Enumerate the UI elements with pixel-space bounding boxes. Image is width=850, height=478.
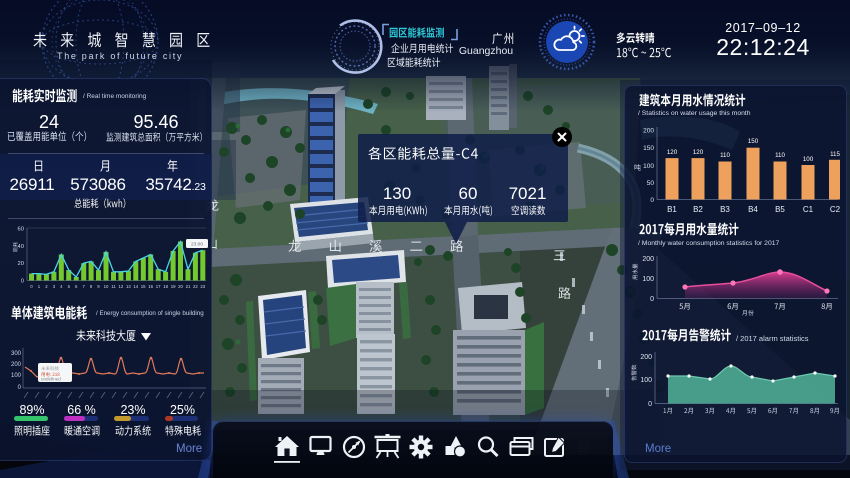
svg-text:17: 17 <box>156 284 161 289</box>
svg-text:11: 11 <box>111 284 116 289</box>
svg-text:15: 15 <box>141 284 146 289</box>
svg-text:13: 13 <box>126 284 131 289</box>
svg-text:B1: B1 <box>667 205 677 214</box>
svg-text:0: 0 <box>650 296 654 303</box>
svg-text:18: 18 <box>163 284 168 289</box>
svg-text:115: 115 <box>830 151 840 158</box>
svg-text:16: 16 <box>148 284 153 289</box>
svg-text:10: 10 <box>104 284 109 289</box>
svg-text:undefined: undefined <box>41 377 61 382</box>
svg-text:C1: C1 <box>803 205 814 214</box>
svg-text:150: 150 <box>748 138 759 145</box>
svg-text:100: 100 <box>11 373 22 379</box>
svg-text:0: 0 <box>30 284 33 289</box>
svg-text:120: 120 <box>667 149 678 156</box>
svg-text:7: 7 <box>83 284 86 289</box>
svg-text:100: 100 <box>640 377 652 384</box>
svg-text:40: 40 <box>18 244 24 250</box>
svg-text:B3: B3 <box>720 205 730 214</box>
svg-text:B2: B2 <box>693 205 703 214</box>
svg-text:14: 14 <box>133 284 138 289</box>
svg-text:19: 19 <box>171 284 176 289</box>
svg-text:0: 0 <box>18 385 22 391</box>
svg-text:5: 5 <box>68 284 71 289</box>
svg-text:8: 8 <box>90 284 93 289</box>
svg-text:22: 22 <box>193 284 198 289</box>
svg-text:110: 110 <box>720 152 730 159</box>
svg-text:3: 3 <box>53 284 56 289</box>
svg-text:200: 200 <box>11 362 22 368</box>
svg-text:60: 60 <box>18 227 24 233</box>
svg-text:200: 200 <box>640 354 652 361</box>
svg-text:C2: C2 <box>830 205 840 214</box>
svg-text:21: 21 <box>186 284 191 289</box>
svg-text:6: 6 <box>75 284 78 289</box>
svg-text:300: 300 <box>11 351 22 357</box>
svg-text:0: 0 <box>650 197 654 204</box>
svg-text:9: 9 <box>97 284 100 289</box>
svg-text:110: 110 <box>775 152 785 159</box>
svg-text:20: 20 <box>178 284 183 289</box>
svg-text:0: 0 <box>648 401 652 408</box>
svg-text:200: 200 <box>642 256 654 263</box>
svg-text:20: 20 <box>18 261 24 267</box>
svg-text:4: 4 <box>60 284 63 289</box>
svg-text:50: 50 <box>647 180 655 187</box>
svg-text:B5: B5 <box>775 205 785 214</box>
svg-text:23:00: 23:00 <box>191 242 203 248</box>
svg-text:B4: B4 <box>748 205 758 214</box>
svg-text:100: 100 <box>643 163 654 170</box>
svg-text:120: 120 <box>693 149 704 156</box>
svg-text:100: 100 <box>642 276 654 283</box>
svg-text:2: 2 <box>45 284 48 289</box>
svg-text:200: 200 <box>643 128 654 135</box>
svg-text:0: 0 <box>21 279 24 285</box>
svg-text:150: 150 <box>643 145 654 152</box>
svg-text:100: 100 <box>803 156 814 163</box>
svg-text:23: 23 <box>200 284 205 289</box>
svg-text:12: 12 <box>119 284 124 289</box>
svg-text:1: 1 <box>38 284 41 289</box>
